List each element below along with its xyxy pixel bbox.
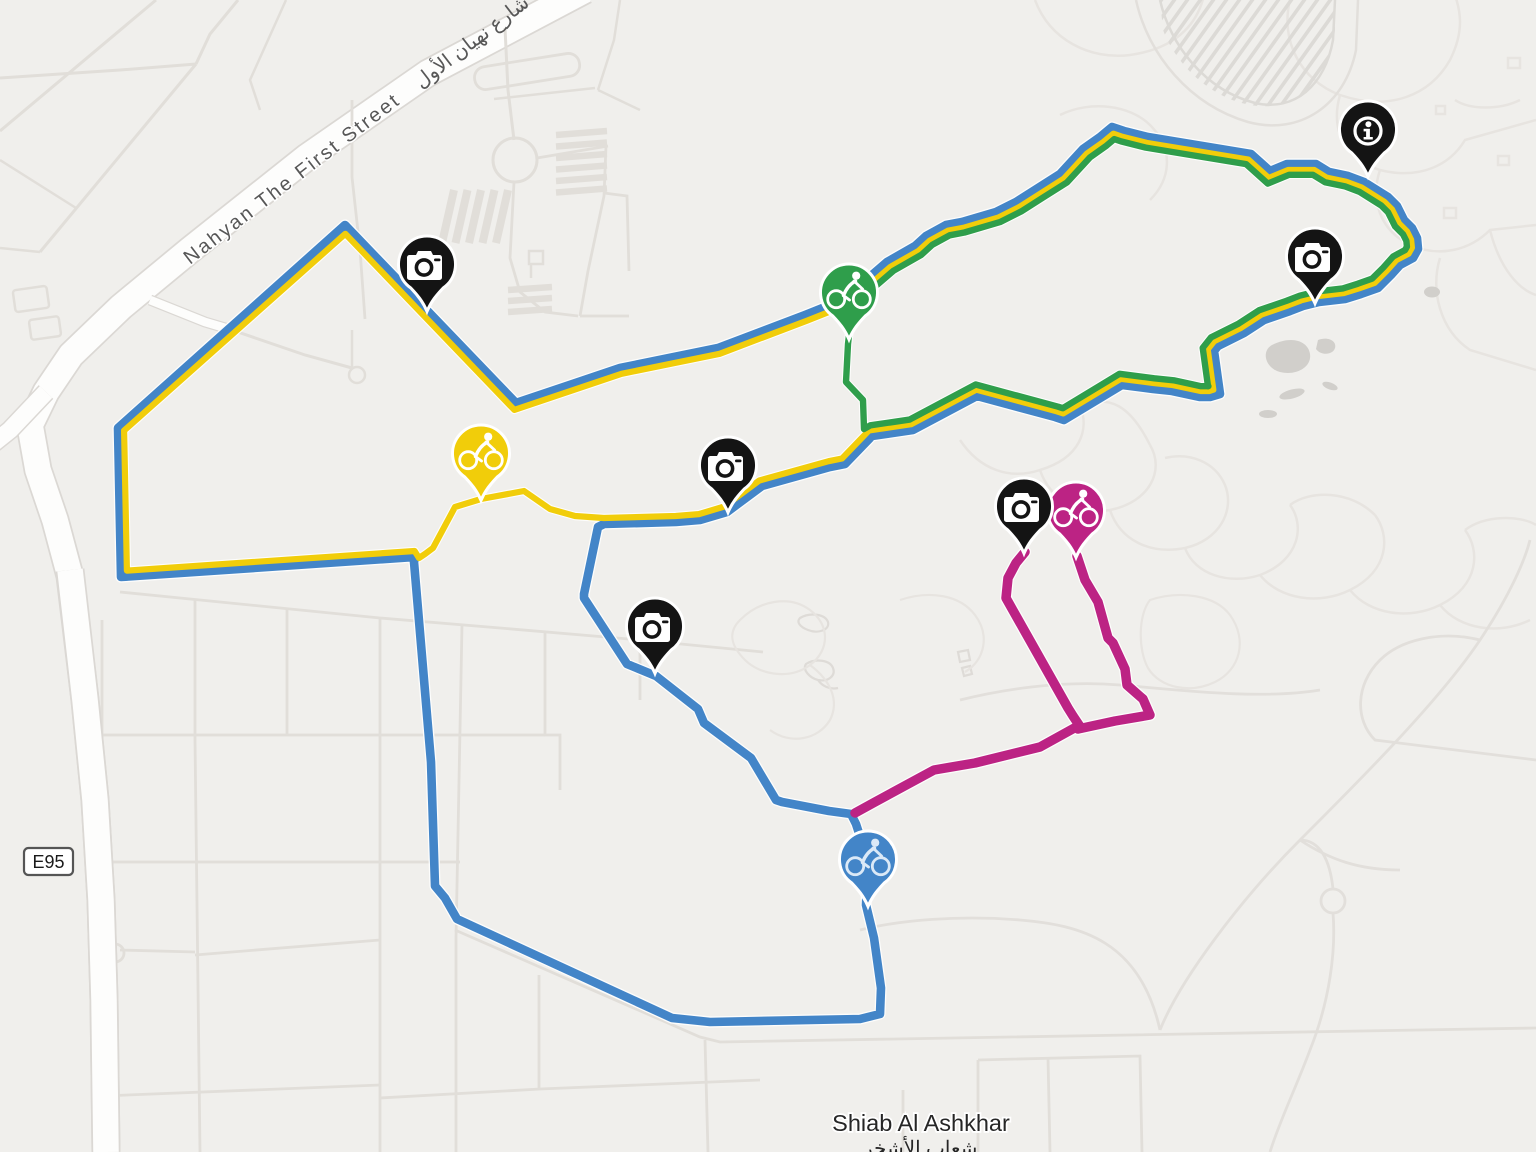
svg-text:E95: E95 <box>32 852 64 872</box>
svg-text:Shiab Al Ashkhar: Shiab Al Ashkhar <box>832 1110 1010 1136</box>
